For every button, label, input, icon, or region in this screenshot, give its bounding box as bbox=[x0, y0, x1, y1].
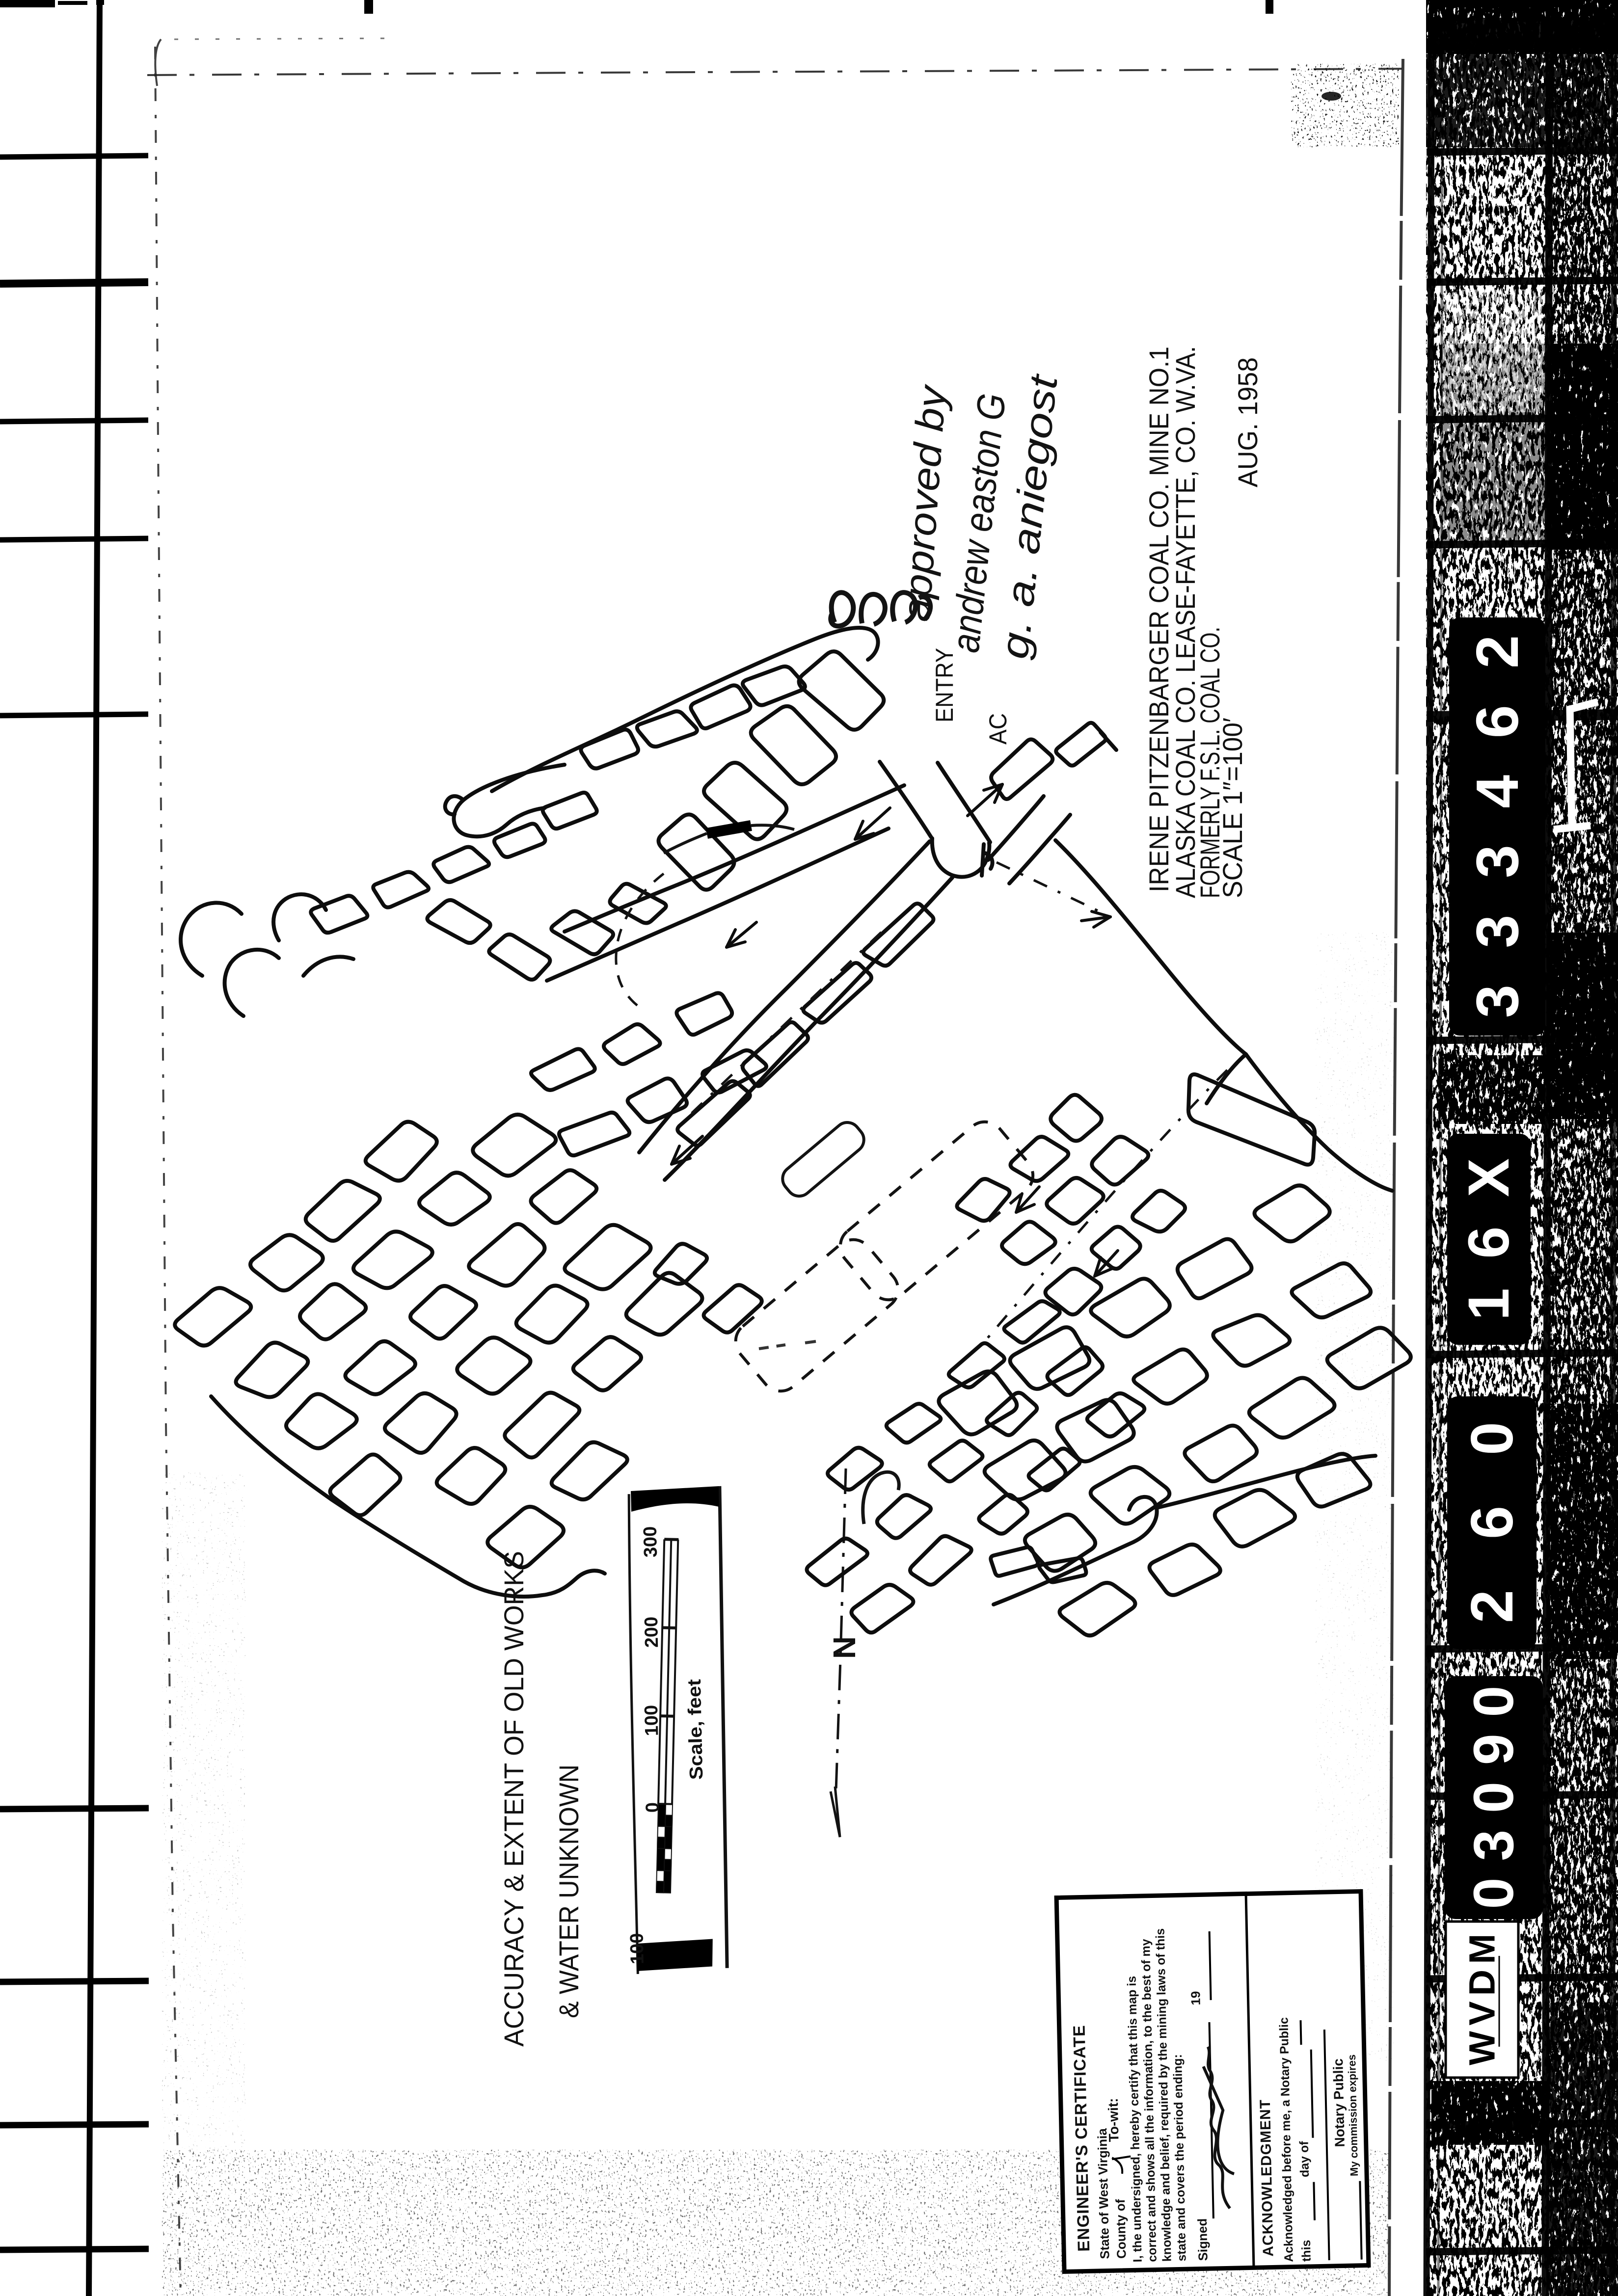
svg-text:0: 0 bbox=[642, 1802, 663, 1813]
svg-text:AC: AC bbox=[984, 713, 1012, 745]
svg-text:300: 300 bbox=[640, 1526, 661, 1557]
svg-text:To-wit:: To-wit: bbox=[1106, 2098, 1122, 2142]
svg-text:19: 19 bbox=[1188, 1991, 1203, 2005]
svg-text:100: 100 bbox=[641, 1705, 662, 1736]
svg-text:ACCURACY & EXTENT OF OLD WORKS: ACCURACY & EXTENT OF OLD WORKS bbox=[498, 1551, 529, 2047]
svg-text:Notary Public: Notary Public bbox=[1330, 2058, 1348, 2147]
svg-text:N: N bbox=[827, 1636, 862, 1659]
svg-text:260: 260 bbox=[1458, 1422, 1525, 1623]
svg-text:State of West Virginia: State of West Virginia bbox=[1095, 2128, 1112, 2259]
svg-text:200: 200 bbox=[641, 1616, 662, 1648]
svg-text:day of: day of bbox=[1297, 2141, 1312, 2178]
svg-text:ENTRY: ENTRY bbox=[931, 648, 958, 722]
svg-text:ACKNOWLEDGMENT: ACKNOWLEDGMENT bbox=[1257, 2099, 1277, 2257]
svg-text:& WATER UNKNOWN: & WATER UNKNOWN bbox=[553, 1764, 584, 2018]
svg-text:My commission expires: My commission expires bbox=[1346, 2055, 1360, 2177]
svg-text:100: 100 bbox=[626, 1933, 647, 1964]
svg-text:SCALE 1″=100′: SCALE 1″=100′ bbox=[1217, 718, 1248, 898]
svg-text:this: this bbox=[1299, 2240, 1314, 2262]
svg-text:Scale, feet: Scale, feet bbox=[684, 1679, 707, 1780]
svg-text:County of: County of bbox=[1113, 2199, 1129, 2259]
svg-text:Signed: Signed bbox=[1195, 2218, 1211, 2261]
svg-text:16X: 16X bbox=[1456, 1158, 1521, 1320]
svg-text:AUG. 1958: AUG. 1958 bbox=[1232, 357, 1263, 487]
